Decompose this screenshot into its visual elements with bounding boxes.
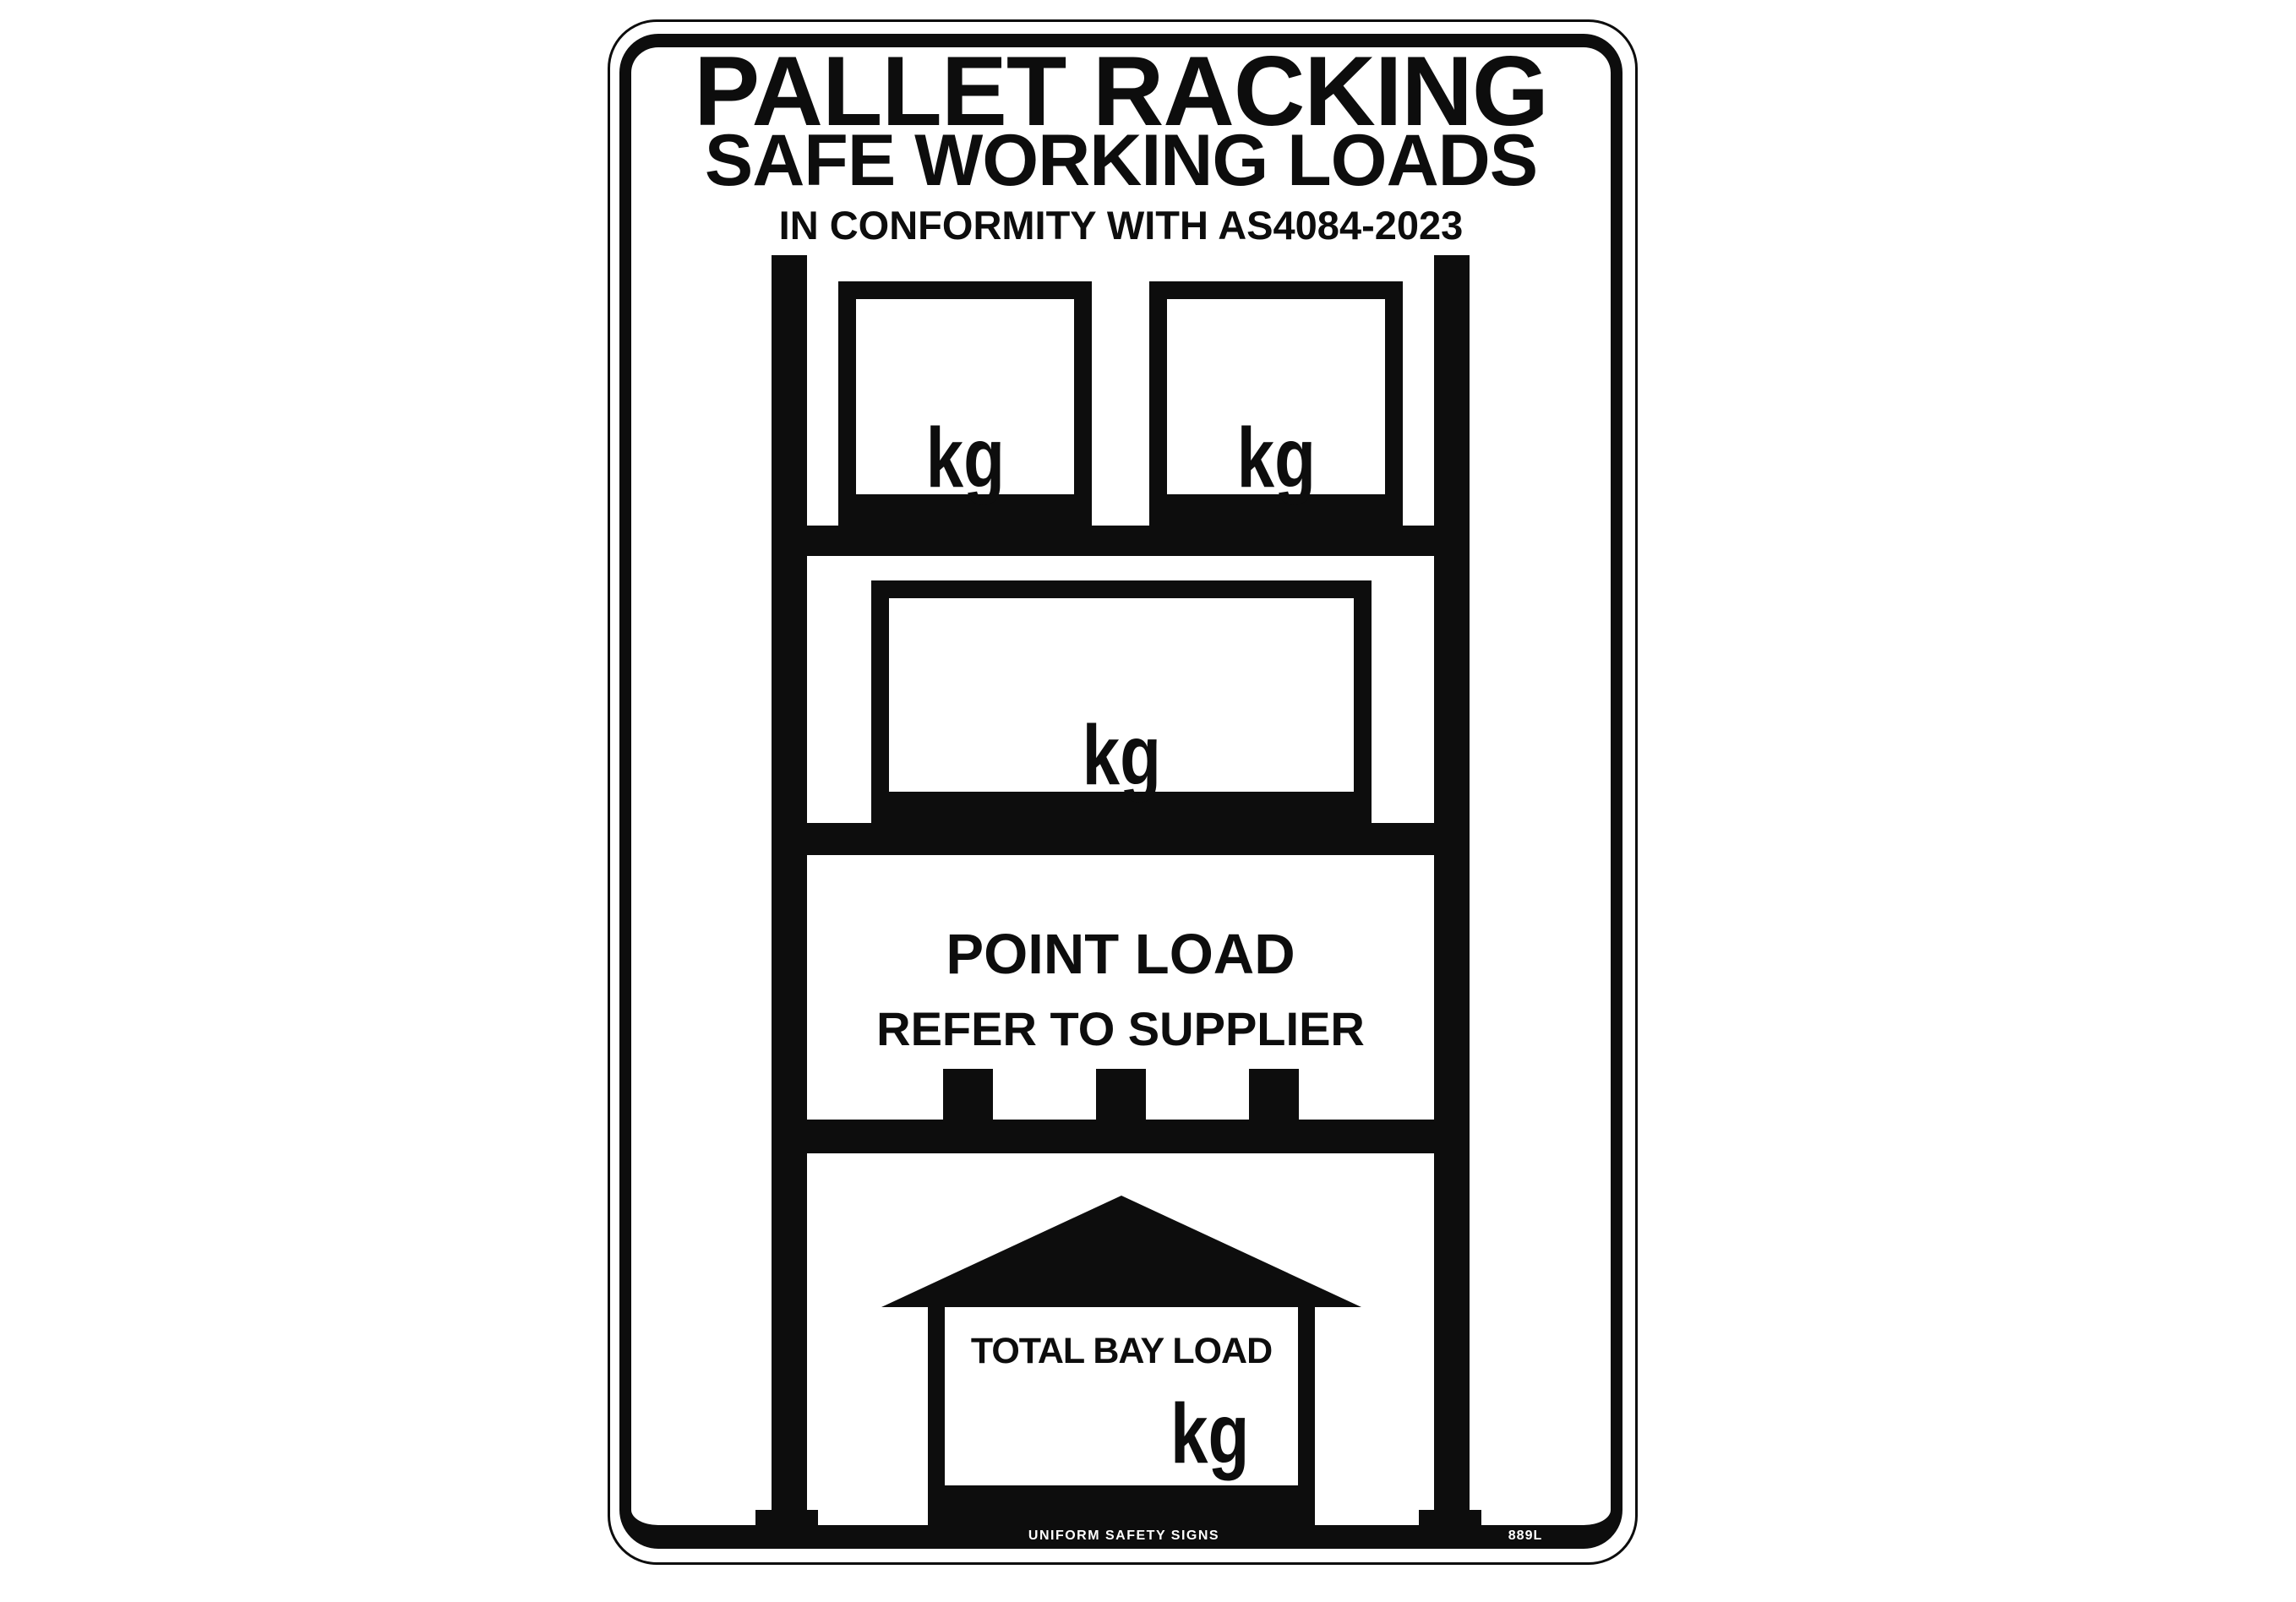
sign-subtitle: SAFE WORKING LOADS — [619, 124, 1622, 197]
pallet-load-unit: kg — [1236, 422, 1315, 494]
shelf-beam-middle — [772, 823, 1470, 855]
up-arrow-icon — [881, 1196, 1361, 1307]
rack-upright-left — [772, 255, 807, 1525]
pallet-load-unit: kg — [925, 422, 1004, 494]
conformity-note: IN CONFORMITY WITH AS4084-2023 — [619, 205, 1622, 245]
point-load-foot-icon — [943, 1069, 993, 1120]
total-bay-load-unit: kg — [1170, 1392, 1249, 1476]
pallet-load-box-top-right: kg — [1149, 281, 1403, 526]
pallet-load-box-middle: kg — [871, 580, 1372, 823]
point-load-foot-icon — [1249, 1069, 1299, 1120]
total-bay-load-label: TOTAL BAY LOAD — [945, 1333, 1298, 1370]
manufacturer-brand: UNIFORM SAFETY SIGNS — [963, 1525, 1284, 1547]
rack-upright-right — [1434, 255, 1470, 1525]
total-bay-box-base — [928, 1485, 1315, 1525]
shelf-beam-top — [772, 526, 1470, 556]
rack-baseplate-right — [1419, 1510, 1481, 1525]
rack-baseplate-left — [755, 1510, 818, 1525]
shelf-beam-lower — [772, 1120, 1470, 1153]
point-load-foot-icon — [1096, 1069, 1146, 1120]
pallet-load-box-top-left: kg — [838, 281, 1092, 526]
point-load-subtitle: REFER TO SUPPLIER — [772, 1005, 1470, 1053]
pallet-load-unit: kg — [1082, 719, 1160, 792]
point-load-title: POINT LOAD — [772, 926, 1470, 983]
catalog-code: 889L — [1487, 1525, 1563, 1547]
